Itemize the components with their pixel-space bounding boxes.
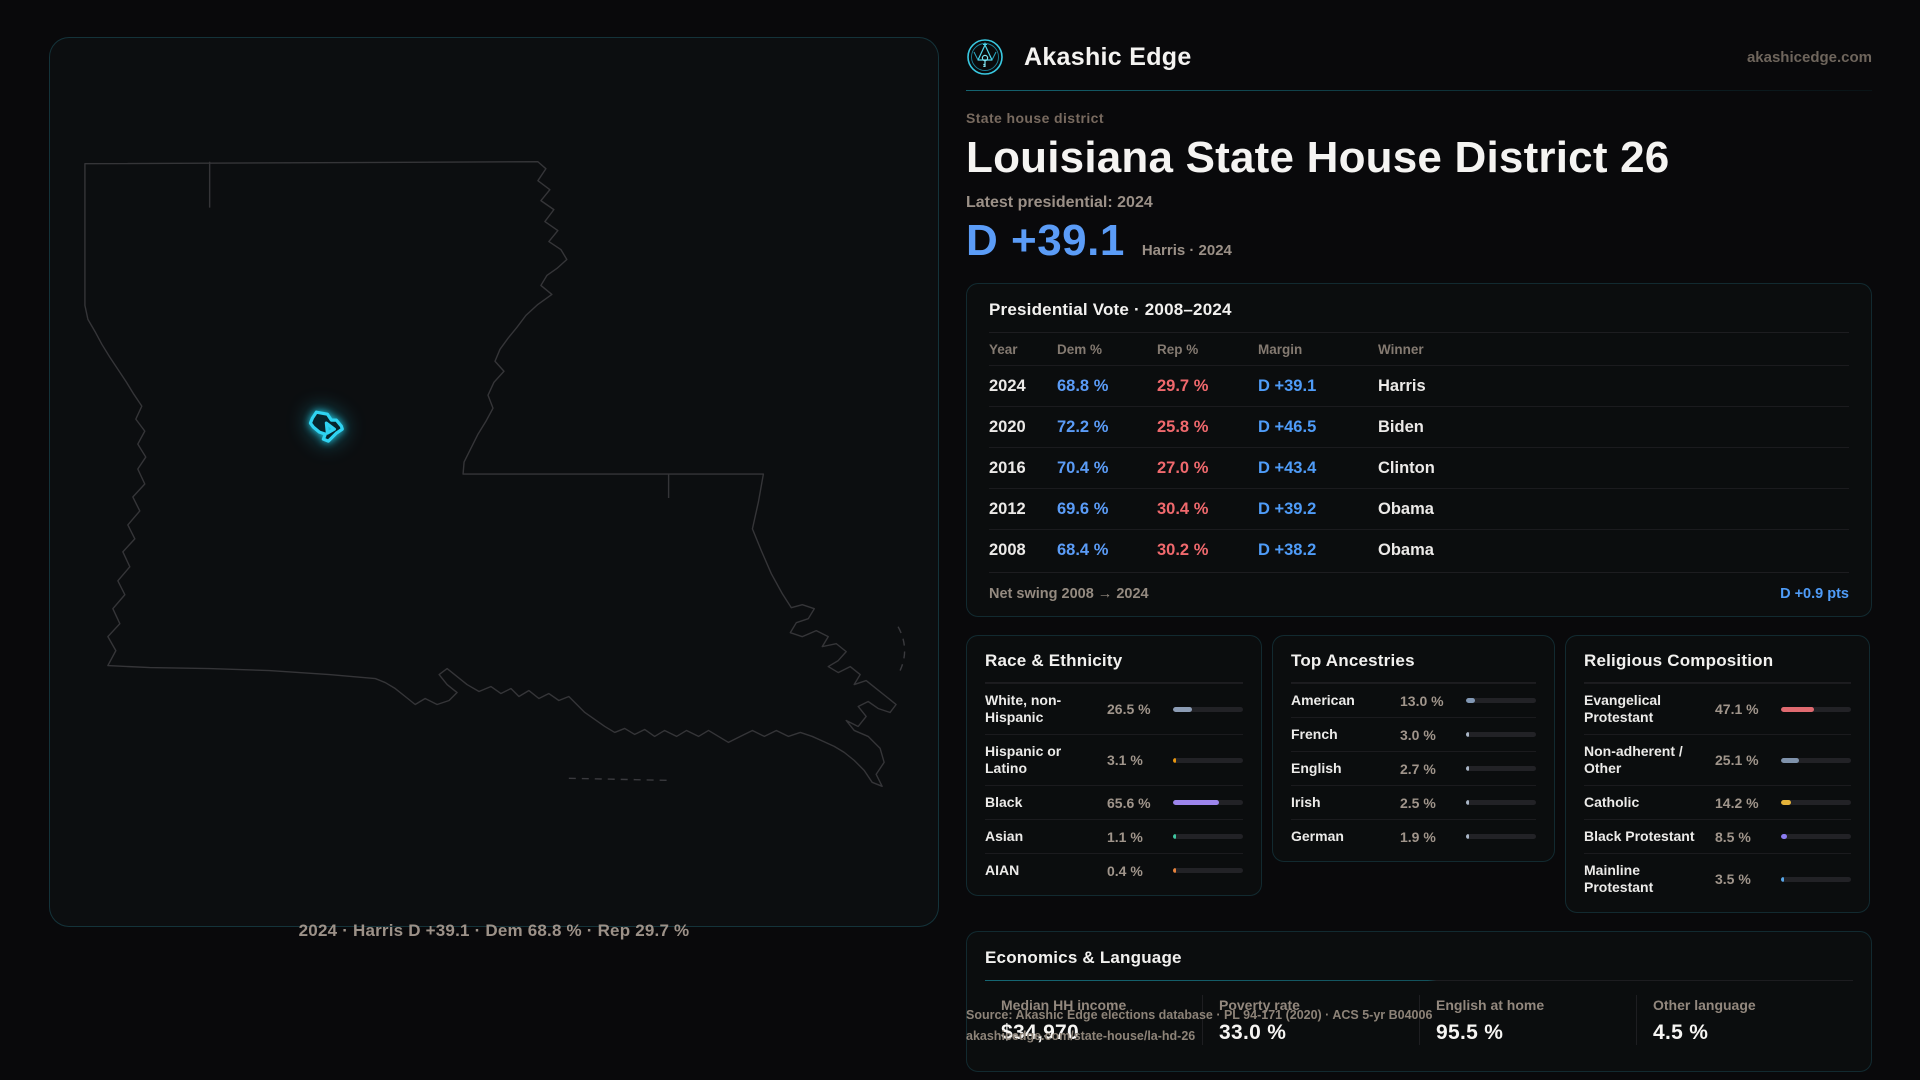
winner-cell: Biden [1378,418,1849,437]
year-cell: 2016 [989,459,1057,478]
stat-value: 0.4 % [1107,863,1165,879]
stat-value: 8.5 % [1715,829,1773,845]
list-item: Black 65.6 % [985,785,1243,819]
stat-bar [1173,800,1243,805]
louisiana-outline [85,162,896,787]
dem-cell: 68.8 % [1057,377,1157,396]
year-cell: 2012 [989,500,1057,519]
year-cell: 2020 [989,418,1057,437]
religion-card: Religious Composition Evangelical Protes… [1565,635,1870,913]
dem-cell: 72.2 % [1057,418,1157,437]
stat-bar [1781,707,1851,712]
rep-cell: 25.8 % [1157,418,1258,437]
col-year: Year [989,342,1057,357]
stat-bar [1173,868,1243,873]
brand-name: Akashic Edge [1024,43,1192,72]
economics-panel: Economics & Language Median HH income $3… [966,931,1872,1072]
economics-panel-title: Economics & Language [985,948,1853,968]
list-item: Black Protestant 8.5 % [1584,819,1851,853]
religion-card-title: Religious Composition [1584,651,1851,671]
stat-label: American [1291,692,1392,709]
stat-bar [1173,707,1243,712]
stat-label: German [1291,828,1392,845]
margin-cell: D +39.1 [1258,377,1378,396]
dem-cell: 68.4 % [1057,541,1157,560]
margin-cell: D +46.5 [1258,418,1378,437]
latest-presidential-label: Latest presidential: 2024 [966,194,1872,212]
stat-bar [1466,766,1536,771]
stat-cell: Median HH income $34,970 [985,995,1202,1045]
stat-bar [1781,834,1851,839]
stat-cell: Other language 4.5 % [1636,995,1853,1045]
table-row: 2016 70.4 % 27.0 % D +43.4 Clinton [989,447,1849,488]
stat-label: English at home [1436,997,1626,1013]
list-item: Evangelical Protestant 47.1 % [1584,683,1851,734]
stat-value: 1.1 % [1107,829,1165,845]
list-item: White, non-Hispanic 26.5 % [985,683,1243,734]
stat-value: $34,970 [1001,1021,1192,1045]
stat-bar [1173,834,1243,839]
year-cell: 2024 [989,377,1057,396]
list-item: English 2.7 % [1291,751,1536,785]
stat-value: 3.0 % [1400,727,1458,743]
list-item: Irish 2.5 % [1291,785,1536,819]
stat-label: Poverty rate [1219,997,1409,1013]
margin-cell: D +39.2 [1258,500,1378,519]
stat-label: White, non-Hispanic [985,692,1099,726]
winner-cell: Clinton [1378,459,1849,478]
demographics-row: Race & Ethnicity White, non-Hispanic 26.… [966,635,1872,913]
ancestries-card-title: Top Ancestries [1291,651,1536,671]
header-divider [966,90,1872,91]
stat-label: Asian [985,828,1099,845]
headline-margin-value: D +39.1 [966,216,1125,266]
page-title: Louisiana State House District 26 [966,133,1872,183]
rep-cell: 30.4 % [1157,500,1258,519]
stat-cell: English at home 95.5 % [1419,995,1636,1045]
stat-value: 65.6 % [1107,795,1165,811]
stat-label: Hispanic or Latino [985,743,1099,777]
stat-label: Non-adherent / Other [1584,743,1707,777]
app-header: Akashic Edge akashicedge.com [966,0,1872,76]
table-row: 2012 69.6 % 30.4 % D +39.2 Obama [989,488,1849,529]
stat-bar [1781,877,1851,882]
col-winner: Winner [1378,342,1849,357]
stat-value: 1.9 % [1400,829,1458,845]
stat-bar [1466,698,1536,703]
headline-margin-context: Harris · 2024 [1142,242,1232,259]
akashic-emblem-icon [966,38,1004,76]
stat-label: Other language [1653,997,1843,1013]
race-ethnicity-card: Race & Ethnicity White, non-Hispanic 26.… [966,635,1262,896]
list-item: AIAN 0.4 % [985,853,1243,887]
stat-value: 2.7 % [1400,761,1458,777]
stat-value: 4.5 % [1653,1021,1843,1045]
dem-cell: 70.4 % [1057,459,1157,478]
brand-domain-link[interactable]: akashicedge.com [1747,49,1872,66]
dem-cell: 69.6 % [1057,500,1157,519]
stat-bar [1466,732,1536,737]
vote-table-header: Year Dem % Rep % Margin Winner [989,333,1849,365]
winner-cell: Harris [1378,377,1849,396]
col-margin: Margin [1258,342,1378,357]
barrier-islands [569,627,905,781]
stat-value: 13.0 % [1400,693,1458,709]
stat-cell: Poverty rate 33.0 % [1202,995,1419,1045]
stat-value: 25.1 % [1715,752,1773,768]
stat-label: Irish [1291,794,1392,811]
list-item: Non-adherent / Other 25.1 % [1584,734,1851,785]
stat-label: Median HH income [1001,997,1192,1013]
stat-label: Mainline Protestant [1584,862,1707,896]
net-swing-label: Net swing 2008 → 2024 [989,586,1149,602]
winner-cell: Obama [1378,541,1849,560]
year-cell: 2008 [989,541,1057,560]
net-swing-value: D +0.9 pts [1780,586,1849,602]
list-item: French 3.0 % [1291,717,1536,751]
stat-label: Black [985,794,1099,811]
map-caption: 2024 · Harris D +39.1 · Dem 68.8 % · Rep… [49,921,939,941]
list-item: Hispanic or Latino 3.1 % [985,734,1243,785]
stat-label: AIAN [985,862,1099,879]
stat-value: 3.5 % [1715,871,1773,887]
net-swing-row: Net swing 2008 → 2024 D +0.9 pts [989,572,1849,602]
stat-bar [1173,758,1243,763]
stat-bar [1466,834,1536,839]
stat-bar [1781,800,1851,805]
economics-stats: Median HH income $34,970 Poverty rate 33… [985,995,1853,1045]
race-card-title: Race & Ethnicity [985,651,1243,671]
stat-value: 33.0 % [1219,1021,1409,1045]
border-tick-lines [210,162,669,498]
list-item: German 1.9 % [1291,819,1536,853]
stat-value: 47.1 % [1715,701,1773,717]
divider [985,980,1853,981]
district-map-panel [49,37,939,927]
stat-value: 14.2 % [1715,795,1773,811]
stat-label: English [1291,760,1392,777]
stat-value: 26.5 % [1107,701,1165,717]
louisiana-map [50,38,938,926]
stat-bar [1781,758,1851,763]
stat-label: Evangelical Protestant [1584,692,1707,726]
margin-cell: D +38.2 [1258,541,1378,560]
dashboard-page: 2024 · Harris D +39.1 · Dem 68.8 % · Rep… [0,0,1920,1080]
list-item: American 13.0 % [1291,683,1536,717]
list-item: Asian 1.1 % [985,819,1243,853]
list-item: Mainline Protestant 3.5 % [1584,853,1851,904]
ancestries-card: Top Ancestries American 13.0 % French 3.… [1272,635,1555,862]
stat-value: 3.1 % [1107,752,1165,768]
col-rep: Rep % [1157,342,1258,357]
district-26-shape[interactable] [310,412,342,441]
table-row: 2008 68.4 % 30.2 % D +38.2 Obama [989,529,1849,570]
margin-cell: D +43.4 [1258,459,1378,478]
rep-cell: 30.2 % [1157,541,1258,560]
rep-cell: 27.0 % [1157,459,1258,478]
list-item: Catholic 14.2 % [1584,785,1851,819]
rep-cell: 29.7 % [1157,377,1258,396]
presidential-vote-panel: Presidential Vote · 2008–2024 Year Dem %… [966,283,1872,617]
stat-bar [1466,800,1536,805]
table-row: 2024 68.8 % 29.7 % D +39.1 Harris [989,365,1849,406]
table-row: 2020 72.2 % 25.8 % D +46.5 Biden [989,406,1849,447]
detail-column: Akashic Edge akashicedge.com State house… [966,0,1872,1072]
stat-label: Catholic [1584,794,1707,811]
district-type-eyebrow: State house district [966,110,1872,126]
stat-label: French [1291,726,1392,743]
col-dem: Dem % [1057,342,1157,357]
headline-margin-row: D +39.1 Harris · 2024 [966,216,1872,266]
presidential-panel-title: Presidential Vote · 2008–2024 [989,300,1849,320]
stat-label: Black Protestant [1584,828,1707,845]
stat-value: 95.5 % [1436,1021,1626,1045]
stat-value: 2.5 % [1400,795,1458,811]
winner-cell: Obama [1378,500,1849,519]
